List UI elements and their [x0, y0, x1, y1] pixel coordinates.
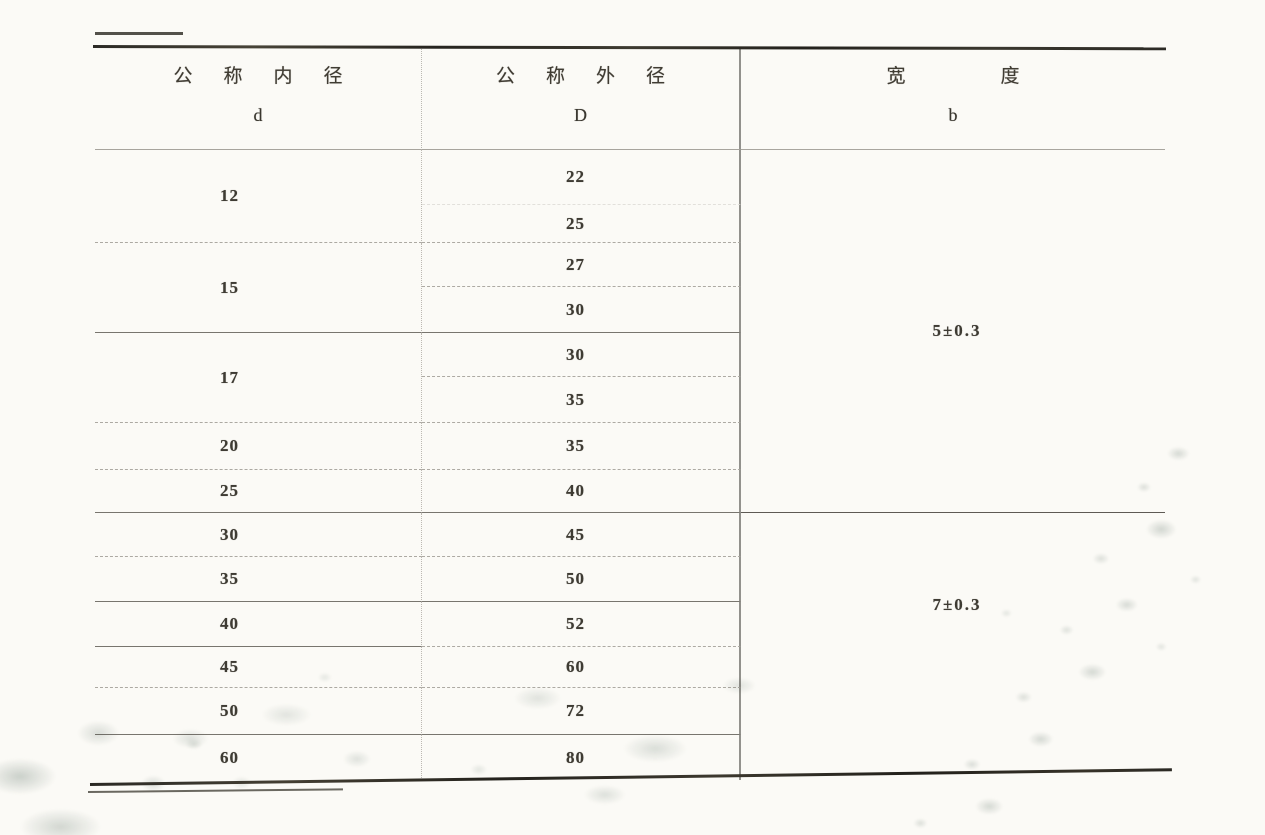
header-symbol-b: b — [949, 105, 958, 126]
inner-diameter-cell: 60 — [95, 735, 422, 780]
inner-diameter-cell: 20 — [95, 423, 422, 470]
spec-table: 公称内径 d 公称外径 D 宽度 b 122225152730173035203… — [95, 47, 1165, 780]
outer-diameter-cell: 35 — [422, 377, 741, 423]
outer-diameter-cell: 52 — [422, 602, 741, 647]
width-cell: 5±0.3 — [741, 150, 1165, 513]
header-title-outer-diameter: 公称外径 — [496, 61, 696, 88]
outer-diameter-cell: 50 — [422, 557, 741, 602]
inner-diameter-cell: 17 — [95, 333, 422, 423]
outer-diameter-cell: 25 — [422, 205, 741, 243]
header-title-inner-diameter: 公称内径 — [173, 61, 373, 88]
scanned-page: 公称内径 d 公称外径 D 宽度 b 122225152730173035203… — [0, 0, 1265, 835]
inner-diameter-cell: 15 — [95, 243, 422, 333]
header-outer-diameter: 公称外径 D — [422, 47, 741, 150]
outer-diameter-cell: 80 — [422, 735, 741, 780]
inner-diameter-cell: 12 — [95, 150, 422, 243]
outer-diameter-cell: 40 — [422, 470, 741, 513]
outer-diameter-cell: 30 — [422, 287, 741, 333]
outer-diameter-cell: 22 — [422, 150, 741, 205]
outer-diameter-cell: 72 — [422, 688, 741, 735]
header-width: 宽度 b — [741, 47, 1165, 150]
outer-diameter-cell: 60 — [422, 647, 741, 688]
outer-diameter-cell: 35 — [422, 423, 741, 470]
inner-diameter-cell: 45 — [95, 647, 422, 688]
header-symbol-d: d — [254, 105, 263, 126]
inner-diameter-cell: 30 — [95, 513, 422, 557]
header-symbol-D: D — [574, 105, 587, 126]
header-title-width: 宽度 — [886, 61, 1114, 88]
inner-diameter-cell: 50 — [95, 688, 422, 735]
outer-diameter-cell: 27 — [422, 243, 741, 287]
inner-diameter-cell: 25 — [95, 470, 422, 513]
width-cell: 7±0.3 — [741, 513, 1165, 780]
table-bottom-border-fragment — [88, 788, 343, 793]
table-top-border-fragment — [95, 32, 183, 35]
outer-diameter-cell: 30 — [422, 333, 741, 377]
inner-diameter-cell: 40 — [95, 602, 422, 647]
outer-diameter-cell: 45 — [422, 513, 741, 557]
inner-diameter-cell: 35 — [95, 557, 422, 602]
header-inner-diameter: 公称内径 d — [95, 47, 422, 150]
